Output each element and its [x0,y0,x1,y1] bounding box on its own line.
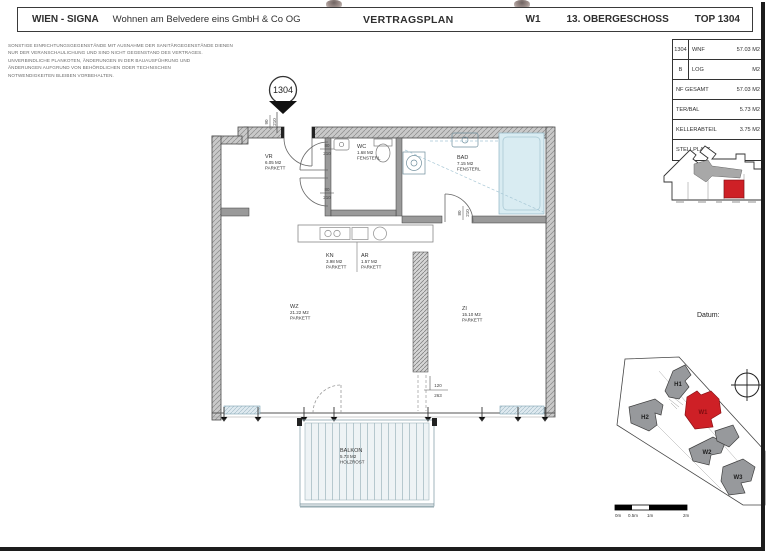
table-row: 1304 WNF 57.03 M2 [673,40,763,60]
row-value: 57.03 M2 [737,87,760,93]
site-label-w2: W2 [703,450,713,456]
building-label: W1 [526,14,541,25]
svg-text:15.10 M2: 15.10 M2 [462,312,481,317]
wc-basin [334,139,349,150]
row-label: NF GESAMT [676,87,737,93]
unit-identification: W1 13. OBERGESCHOSS TOP 1304 [526,14,741,25]
row-prefix: B [673,60,689,79]
svg-text:90: 90 [264,119,269,125]
wall-pier [413,252,428,372]
datum-label: Datum: [697,312,720,319]
svg-text:80: 80 [324,187,330,192]
vertragsplan-sheet: WIEN - SIGNA Wohnen am Belvedere eins Gm… [0,0,770,560]
room-label-vr: VR 6.05 M2 PARKETT [265,154,286,171]
svg-text:FENSTERL: FENSTERL [357,156,381,161]
unit-highlight [724,180,744,198]
svg-text:210: 210 [323,151,331,156]
entrance-door [284,138,312,166]
north-compass-icon [731,369,763,401]
scale-bar: 0m 0.5m 1m 2m [614,501,704,521]
disclaimer-line: SONSTIGE EINRICHTUNGSGEGENSTÄNDE MIT AUS… [8,42,248,49]
disclaimer-line: UNVERBINDLICHE PLANKOTEN, ÄNDERUNGEN IN … [8,57,248,64]
scale-tick: 0m [615,513,622,518]
facade-mullion-anchors [221,407,548,421]
entrance-arrow-icon [269,101,297,114]
kitchen-counter [298,225,433,242]
svg-text:210: 210 [323,195,331,200]
svg-text:PARKETT: PARKETT [462,318,483,323]
svg-text:120: 120 [434,383,442,388]
interior-walls [221,138,546,372]
site-label-w3: W3 [734,475,744,481]
bathtub [499,133,544,214]
scale-tick: 2m [683,513,690,518]
svg-text:3.98 M2: 3.98 M2 [326,259,343,264]
company-label: Wohnen am Belvedere eins GmbH & Co OG [113,14,301,25]
svg-text:21.22 M2: 21.22 M2 [290,310,309,315]
row-value: M2 [752,67,760,73]
svg-text:PARKETT: PARKETT [361,265,382,270]
unit-label: TOP 1304 [695,14,740,25]
svg-text:80: 80 [457,210,462,216]
row-value: 3.75 M2 [740,127,760,133]
svg-text:PARKETT: PARKETT [290,316,311,321]
row-label: TER/BAL [676,107,740,113]
hall-door [300,178,328,206]
svg-text:263: 263 [434,393,442,398]
glazed-facade [212,406,555,421]
room-label-zi: ZI 15.10 M2 PARKETT [462,306,483,323]
plan-title: VERTRAGSPLAN [363,14,454,26]
row-label: WNF [692,47,737,53]
room-label-kn: KN 3.98 M2 PARKETT [326,253,347,270]
table-row: B LOG M2 [673,60,763,80]
floor-keyplan [650,142,765,212]
site-keyplan: H1 H2 W1 W2 W3 [613,355,770,507]
site-label-w1: W1 [699,410,709,416]
doors [284,138,473,413]
window-sill [500,406,544,414]
room-label-wz: WZ 21.22 M2 PARKETT [290,304,311,321]
scale-tick: 1m [647,513,654,518]
passage-opening [418,375,448,411]
site-label-h2: H2 [641,415,649,421]
window-sill [224,406,260,414]
svg-text:1.68 M2: 1.68 M2 [357,150,374,155]
balcony-door [313,385,341,413]
disclaimer-line: NUR DER VERANSCHAULICHUNG UND SIND NICHT… [8,49,248,56]
table-row: KELLERABTEIL 3.75 M2 [673,120,763,140]
svg-text:7.15 M2: 7.15 M2 [457,161,474,166]
washing-machine [403,152,425,174]
site-label-h1: H1 [674,382,682,388]
svg-text:PARKETT: PARKETT [326,265,347,270]
room-label-wc: WC 1.68 M2 FENSTERL [357,144,381,161]
dim-passage: 120 263 [434,383,442,398]
svg-text:HOLZROST: HOLZROST [340,460,365,465]
bath-door [445,194,473,222]
balcony [297,418,437,507]
svg-text:6.05 M2: 6.05 M2 [265,160,282,165]
row-label: LOG [692,67,752,73]
page-edge [761,2,765,551]
scale-tick: 0.5m [628,513,638,518]
dim-bath-door: 80 210 [457,206,470,220]
row-prefix: 1304 [673,40,689,59]
row-label: KELLERABTEIL [676,127,740,133]
row-value: 5.73 M2 [740,107,760,113]
page-edge [0,547,765,551]
row-value: 57.03 M2 [737,47,760,53]
room-label-ar: AR 1.57 M2 PARKETT [361,253,382,270]
svg-text:5.73 M2: 5.73 M2 [340,454,357,459]
title-bar: WIEN - SIGNA Wohnen am Belvedere eins Gm… [17,7,753,32]
unit-number: 1304 [273,85,293,95]
svg-text:210: 210 [465,209,470,217]
svg-text:80: 80 [324,143,330,148]
svg-text:210: 210 [272,118,277,126]
floor-label: 13. OBERGESCHOSS [567,14,669,25]
svg-text:1.57 M2: 1.57 M2 [361,259,378,264]
floor-plan: 1304 90 210 80 210 80 210 80 210 [185,70,575,515]
svg-text:FENSTERL: FENSTERL [457,167,481,172]
brand-label: WIEN - SIGNA [32,14,99,25]
table-row: TER/BAL 5.73 M2 [673,100,763,120]
table-row: NF GESAMT 57.03 M2 [673,80,763,100]
svg-text:PARKETT: PARKETT [265,166,286,171]
room-label-bad: BAD 7.15 M2 FENSTERL [457,155,481,172]
